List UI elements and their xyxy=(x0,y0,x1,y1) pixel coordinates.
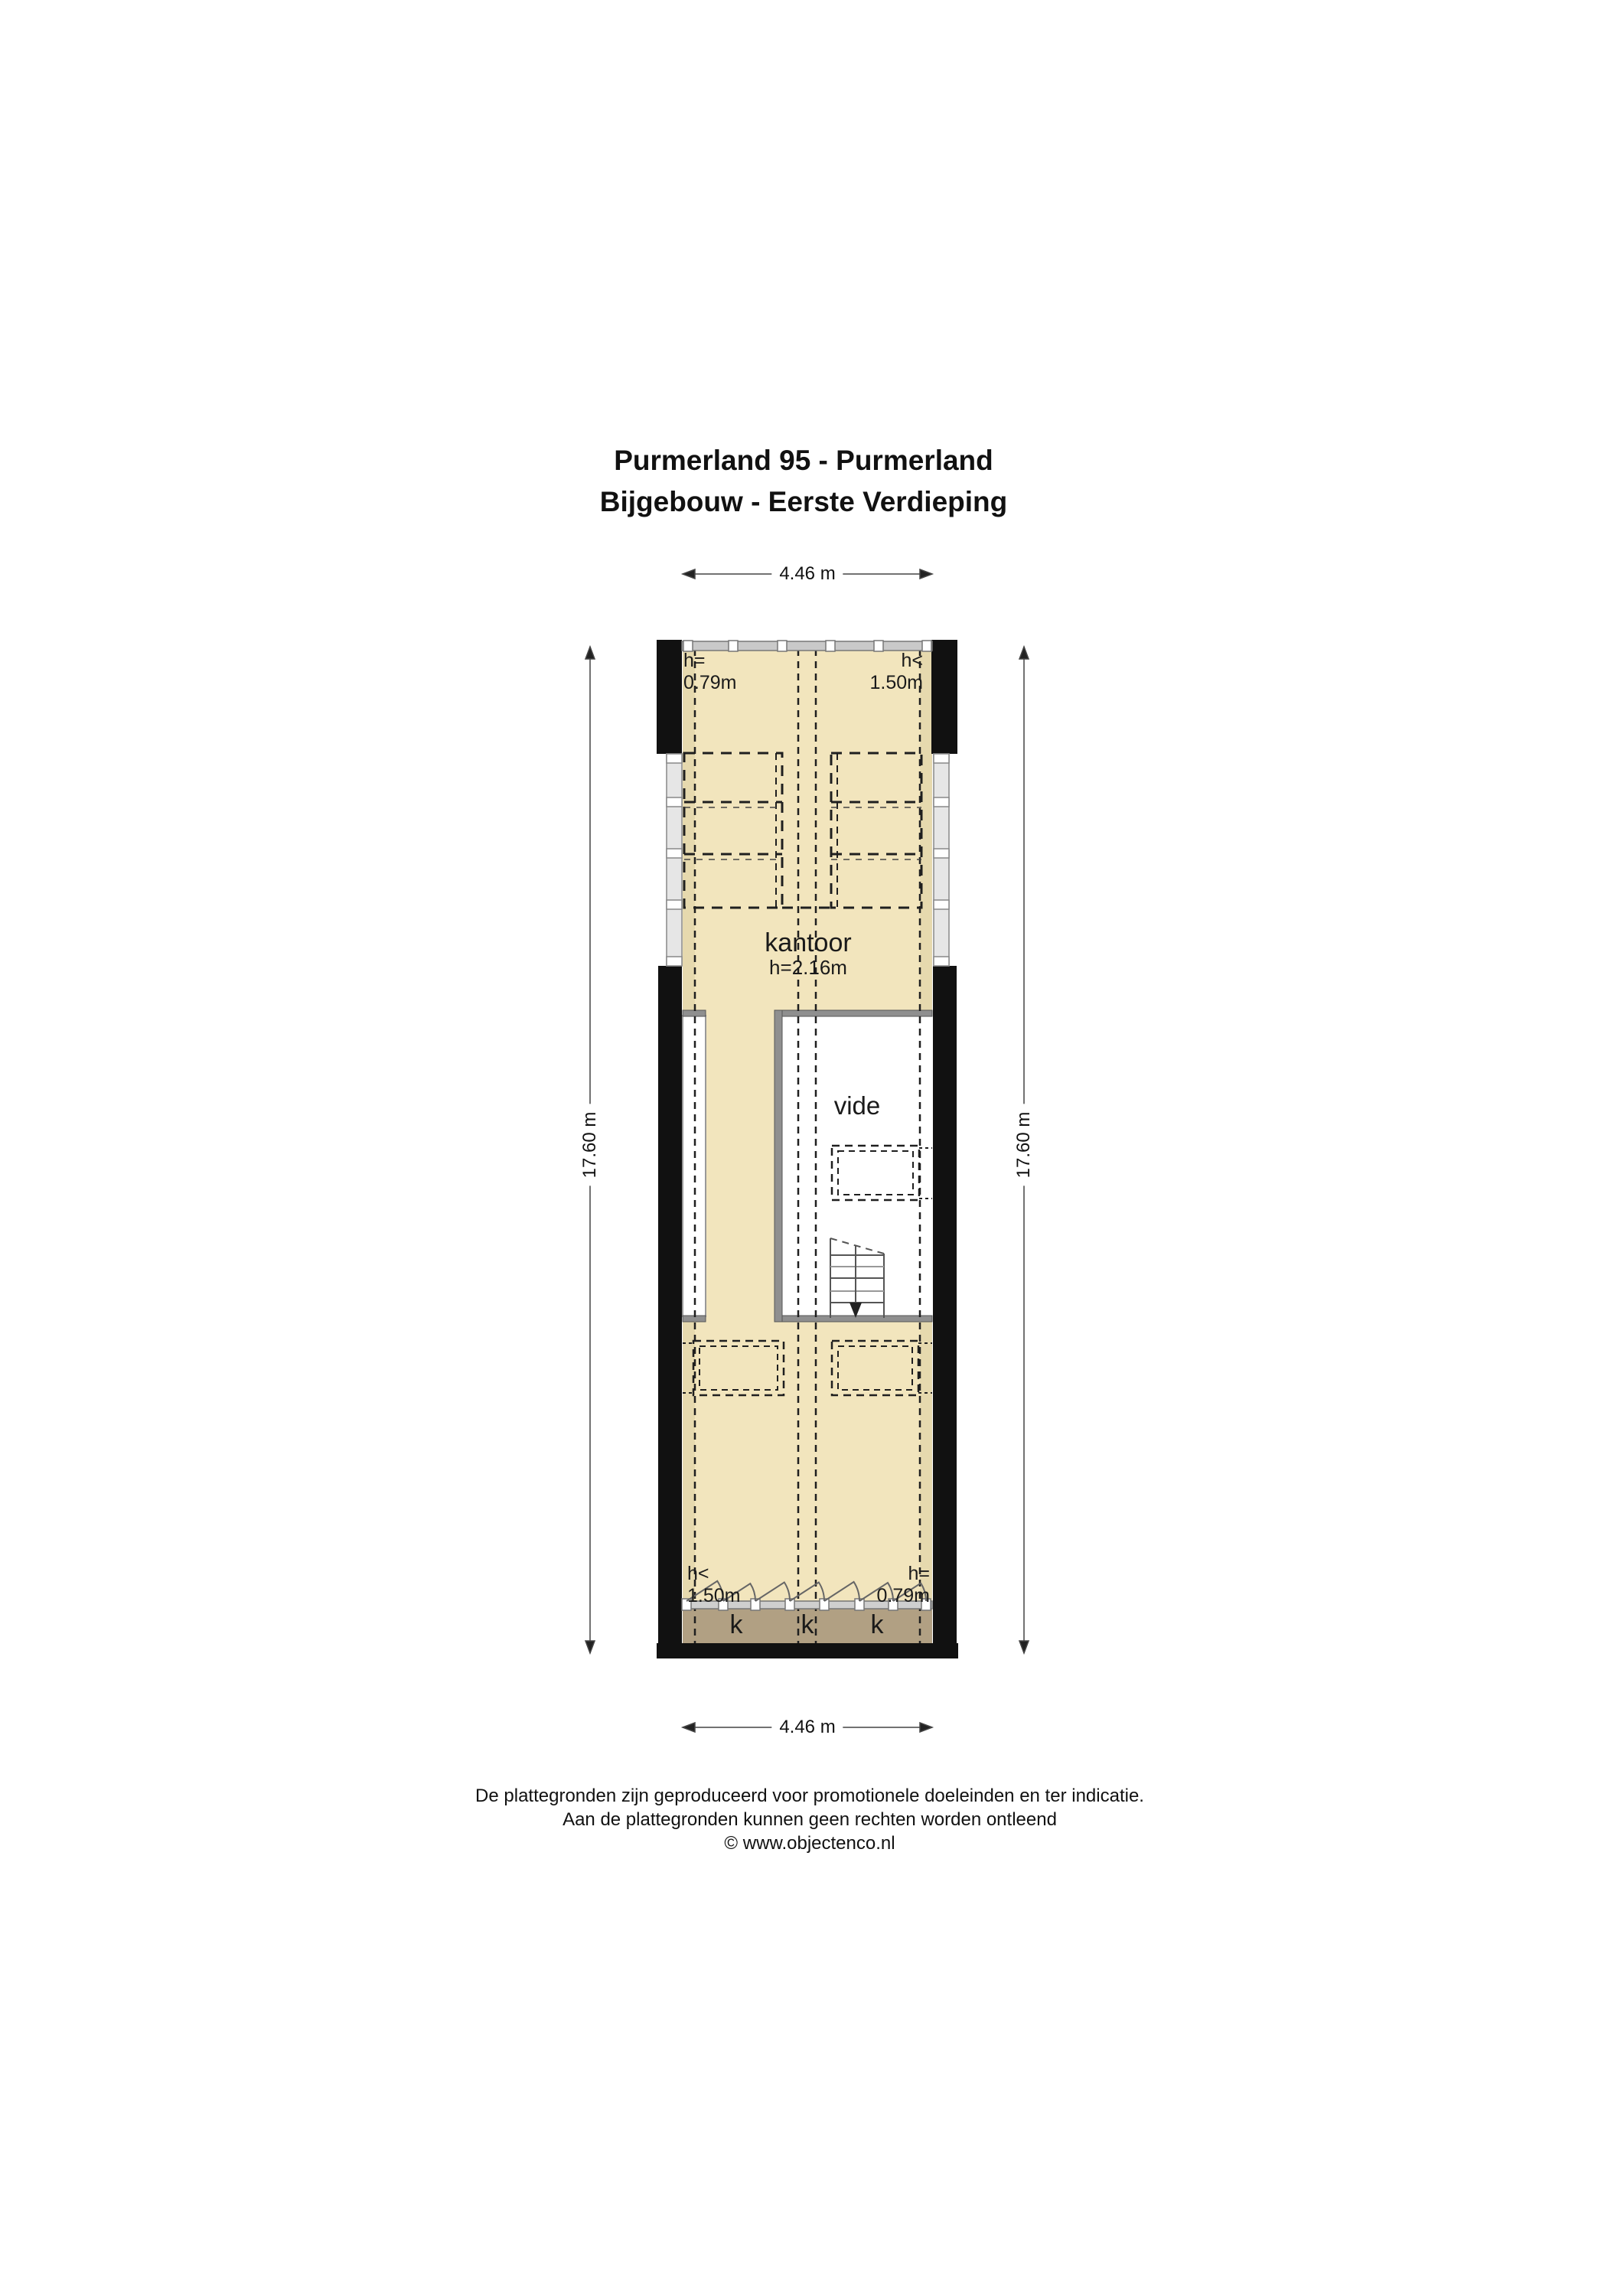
title-line-2: Bijgebouw - Eerste Verdieping xyxy=(600,481,1008,523)
height-marker-top-right: h< 1.50m xyxy=(870,650,923,694)
left-window-band xyxy=(667,754,682,966)
height-marker-bottom-left: h< 1.50m xyxy=(687,1563,740,1607)
footer-line-2: Aan de plattegronden kunnen geen rechten… xyxy=(475,1808,1144,1831)
dimension-label-top: 4.46 m xyxy=(771,563,843,585)
page-title: Purmerland 95 - Purmerland Bijgebouw - E… xyxy=(600,440,1008,523)
closet-label-1: k xyxy=(730,1610,743,1640)
dimension-label-bottom: 4.46 m xyxy=(771,1717,843,1738)
disclaimer-footer: De plattegronden zijn geproduceerd voor … xyxy=(475,1784,1144,1855)
closet-label-2: k xyxy=(801,1610,814,1640)
dimension-label-left: 17.60 m xyxy=(579,1104,601,1186)
arrow-right-icon xyxy=(920,569,932,579)
footer-copyright: © www.objectenco.nl xyxy=(475,1831,1144,1855)
floorplan-page: Purmerland 95 - Purmerland Bijgebouw - E… xyxy=(0,0,1624,2296)
vide-area xyxy=(782,1016,932,1316)
height-marker-top-left: h= 0.79m xyxy=(683,650,736,694)
arrow-left-icon xyxy=(683,569,695,579)
height-marker-bottom-right: h= 0.79m xyxy=(877,1563,930,1607)
right-window-band xyxy=(934,754,949,966)
footer-line-1: De plattegronden zijn geproduceerd voor … xyxy=(475,1784,1144,1808)
floorplan-drawing xyxy=(0,0,1624,2296)
dimension-label-right: 17.60 m xyxy=(1013,1104,1035,1186)
title-line-1: Purmerland 95 - Purmerland xyxy=(600,440,1008,481)
room-label-vide: vide xyxy=(834,1091,881,1120)
closet-label-3: k xyxy=(871,1610,884,1640)
room-height-kantoor: h=2.16m xyxy=(769,956,847,980)
room-label-kantoor: kantoor xyxy=(765,928,851,958)
